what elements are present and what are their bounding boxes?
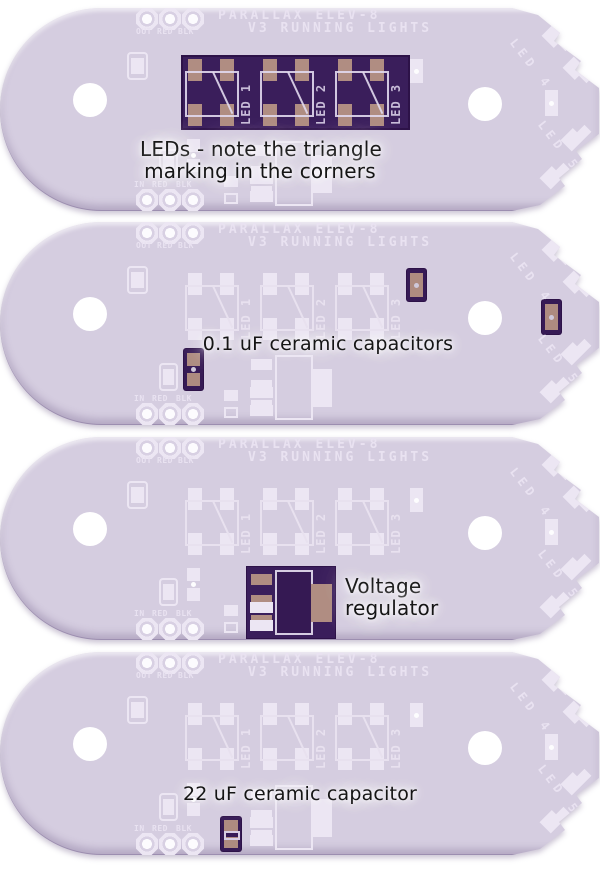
led2-footprint: LED 2 [258,57,333,128]
led-array-footprint: LED 1 LED 2 [183,57,408,128]
title-line2: V3 RUNNING LIGHTS [248,451,432,464]
smd-pad [187,373,200,386]
through-hole-pad-in [136,618,158,640]
annotation-caption: 0.1 uF ceramic capacitors [188,333,468,355]
edge-led-pad [541,668,572,699]
smd-pad [187,588,200,601]
smd-pad [224,407,238,418]
led2-label: LED 2 [314,275,328,339]
annotation-caption: Voltage regulator [345,575,475,619]
silkscreen-title: PARALLAX ELEV-8 V3 RUNNING LIGHTS [218,223,432,249]
capacitor-22uf-footprint [221,602,241,636]
edge-led-pad [541,238,572,269]
led2-footprint: LED 2 [258,486,333,557]
led3-label: LED 3 [389,490,403,554]
label-out: OUT [136,671,152,680]
smd-pad [250,835,273,846]
smd-pad [250,602,273,613]
led2-footprint: LED 2 [258,701,333,772]
edge-led-pad [562,56,593,87]
mounting-hole-right [468,731,502,765]
capacitor-01uf-footprint [407,55,426,87]
led4-label: LED 4 [507,465,556,522]
led2-label: LED 2 [314,490,328,554]
mounting-hole-left [73,727,107,761]
through-hole-pad-red-bottom [159,618,181,640]
led1-label: LED 1 [239,61,253,125]
label-blk-top: BLK [178,671,194,680]
pcb-board: OUT RED BLK PARALLAX ELEV-8 V3 RUNNING L… [0,8,600,211]
via-dot [549,530,554,535]
capacitor-22uf-footprint [221,387,241,421]
smd-pad [250,191,273,202]
regulator-body-outline [275,570,313,635]
led3-label: LED 3 [389,705,403,769]
label-red-bottom: RED [152,609,168,618]
led1-footprint: LED 1 [183,271,258,342]
through-hole-pad-blk-bottom [182,403,204,425]
through-hole-pad-in [136,833,158,855]
label-blk-bottom: BLK [176,394,192,403]
annotation-caption: 22 uF ceramic capacitor [172,783,428,805]
smd-pad [224,605,238,616]
led1-label: LED 1 [239,490,253,554]
pcb-board: OUT RED BLK PARALLAX ELEV-8 V3 RUNNING L… [0,437,600,640]
through-hole-pad-blk-bottom [182,189,204,211]
label-red-top: RED [157,671,173,680]
smd-pad [250,817,273,828]
led-array-footprint: LED 1 LED 2 [183,271,408,342]
led4-label: LED 4 [507,680,556,737]
pcb-panel: OUT RED BLK PARALLAX ELEV-8 V3 RUNNING L… [0,222,600,425]
edge-led-pad [562,485,593,516]
capacitor-01uf-footprint [407,269,426,301]
led1-footprint: LED 1 [183,701,258,772]
label-blk-top: BLK [178,456,194,465]
component-bracket-bottom [159,363,178,391]
led1-footprint: LED 1 [183,486,258,557]
through-hole-pad-in [136,189,158,211]
silkscreen-title: PARALLAX ELEV-8 V3 RUNNING LIGHTS [218,438,432,464]
title-line2: V3 RUNNING LIGHTS [248,22,432,35]
led3-label: LED 3 [389,275,403,339]
label-blk-top: BLK [178,27,194,36]
via-dot [414,713,419,718]
mounting-hole-left [73,297,107,331]
component-bracket-top [127,52,148,80]
led4-label: LED 4 [507,250,556,307]
smd-pad [250,620,273,631]
label-red-bottom: RED [152,394,168,403]
led1-label: LED 1 [239,275,253,339]
silkscreen-title: PARALLAX ELEV-8 V3 RUNNING LIGHTS [218,9,432,35]
component-bracket-top [127,696,148,724]
led3-label: LED 3 [389,61,403,125]
pcb-panel: OUT RED BLK PARALLAX ELEV-8 V3 RUNNING L… [0,8,600,211]
capacitor-01uf-footprint [184,564,203,605]
edge-led-pad [541,24,572,55]
smd-pad [311,584,332,622]
led1-footprint: LED 1 [183,57,258,128]
led3-footprint: LED 3 [333,486,408,557]
through-hole-pad-in [136,403,158,425]
led3-footprint: LED 3 [333,271,408,342]
pcb-board: OUT RED BLK PARALLAX ELEV-8 V3 RUNNING L… [0,222,600,425]
smd-pad [224,820,238,831]
led3-footprint: LED 3 [333,701,408,772]
through-hole-pad-red-bottom [159,403,181,425]
via-dot [549,315,554,320]
through-hole-pad-red-bottom [159,189,181,211]
smd-pad [251,574,272,585]
label-out: OUT [136,27,152,36]
smd-pad [311,369,332,407]
label-red-top: RED [157,27,173,36]
led2-footprint: LED 2 [258,271,333,342]
via-dot [191,367,196,372]
smd-pad [224,622,238,633]
silkscreen-title: PARALLAX ELEV-8 V3 RUNNING LIGHTS [218,653,432,679]
edge-led-pad [562,270,593,301]
through-hole-pad-blk-bottom [182,618,204,640]
smd-pad [250,387,273,398]
label-blk-bottom: BLK [176,609,192,618]
edge-led-pad [562,700,593,731]
component-bracket-top [127,481,148,509]
label-in: IN [134,394,145,403]
through-hole-pad-blk-bottom [182,833,204,855]
mounting-hole-right [468,516,502,550]
smd-pad [250,405,273,416]
through-hole-pad-red-bottom [159,833,181,855]
label-in: IN [134,824,145,833]
label-red-top: RED [157,456,173,465]
pcb-board: OUT RED BLK PARALLAX ELEV-8 V3 RUNNING L… [0,652,600,855]
via-dot [414,69,419,74]
component-bracket-bottom [159,578,178,606]
capacitor-22uf-footprint [221,817,241,851]
via-dot [549,745,554,750]
mounting-hole-right [468,87,502,121]
via-dot [191,582,196,587]
led-array-footprint: LED 1 LED 2 [183,701,408,772]
mounting-hole-right [468,301,502,335]
via-dot [414,283,419,288]
via-dot [414,498,419,503]
annotation-caption: LEDs - note the triangle marking in the … [140,138,380,182]
led3-footprint: LED 3 [333,57,408,128]
capacitor-01uf-footprint [184,349,203,390]
title-line2: V3 RUNNING LIGHTS [248,236,432,249]
led2-label: LED 2 [314,705,328,769]
led1-label: LED 1 [239,705,253,769]
mounting-hole-left [73,512,107,546]
smd-pad [224,390,238,401]
pcb-panel: OUT RED BLK PARALLAX ELEV-8 V3 RUNNING L… [0,652,600,855]
led-array-footprint: LED 1 LED 2 [183,486,408,557]
capacitor-01uf-footprint [407,699,426,731]
label-out: OUT [136,241,152,250]
title-line2: V3 RUNNING LIGHTS [248,666,432,679]
label-blk-bottom: BLK [176,824,192,833]
regulator-body-outline [275,355,313,420]
label-blk-top: BLK [178,241,194,250]
capacitor-body-outline [224,831,240,840]
page: { "page": { "background_color": "#ffffff… [0,0,600,874]
label-in: IN [134,609,145,618]
label-out: OUT [136,456,152,465]
edge-led-pad [541,453,572,484]
via-dot [549,101,554,106]
smd-pad [251,359,272,370]
component-bracket-top [127,266,148,294]
mounting-hole-left [73,83,107,117]
smd-pad [187,568,200,581]
led2-label: LED 2 [314,61,328,125]
led4-label: LED 4 [507,36,556,93]
smd-pad [224,193,238,204]
capacitor-01uf-footprint [407,484,426,516]
pcb-panel: OUT RED BLK PARALLAX ELEV-8 V3 RUNNING L… [0,437,600,640]
label-red-top: RED [157,241,173,250]
label-red-bottom: RED [152,824,168,833]
